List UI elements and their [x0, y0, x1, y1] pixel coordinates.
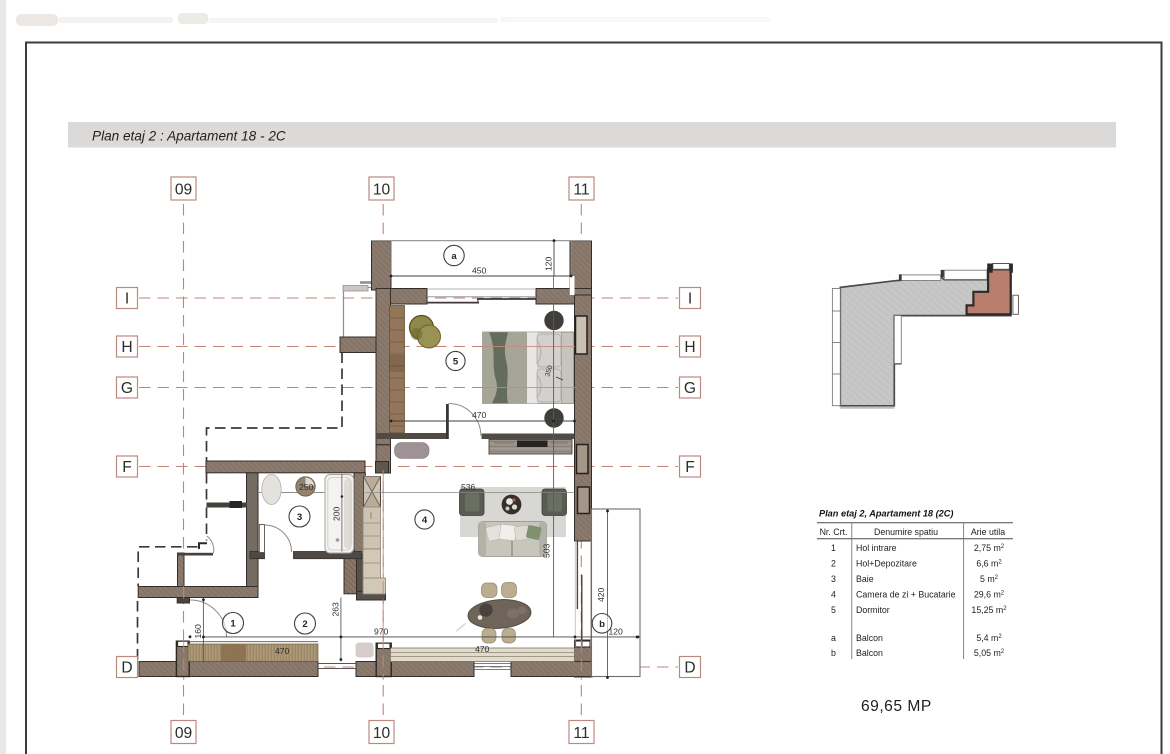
svg-text:H: H: [121, 339, 132, 356]
svg-text:536: 536: [461, 482, 476, 492]
svg-text:Nr. Crt.: Nr. Crt.: [820, 527, 848, 537]
svg-text:3: 3: [297, 512, 302, 523]
svg-text:Hol+Depozitare: Hol+Depozitare: [856, 559, 917, 569]
svg-text:1: 1: [831, 543, 836, 553]
svg-text:970: 970: [374, 627, 389, 637]
svg-text:4: 4: [831, 590, 836, 600]
svg-text:G: G: [121, 380, 133, 397]
svg-text:1: 1: [230, 619, 236, 630]
svg-text:D: D: [121, 660, 132, 677]
svg-text:a: a: [451, 251, 457, 262]
svg-text:I: I: [688, 291, 692, 308]
svg-text:D: D: [684, 660, 695, 677]
svg-text:F: F: [685, 459, 695, 476]
svg-text:160: 160: [193, 624, 203, 639]
svg-text:09: 09: [175, 725, 192, 742]
svg-text:10: 10: [373, 182, 391, 199]
svg-text:Dormitor: Dormitor: [856, 605, 890, 615]
svg-text:a: a: [831, 633, 836, 643]
svg-text:250: 250: [299, 482, 314, 492]
svg-text:Balcon: Balcon: [856, 633, 883, 643]
svg-text:2: 2: [302, 619, 307, 630]
svg-text:b: b: [599, 619, 605, 630]
svg-text:200: 200: [332, 506, 342, 521]
svg-text:503: 503: [542, 543, 552, 558]
svg-text:Denumire spatiu: Denumire spatiu: [874, 527, 938, 537]
svg-text:69,65 MP: 69,65 MP: [861, 698, 932, 715]
svg-text:5: 5: [831, 605, 836, 615]
svg-text:4: 4: [422, 515, 428, 526]
svg-text:2,75 m2: 2,75 m2: [974, 543, 1005, 553]
svg-text:Hol intrare: Hol intrare: [856, 543, 897, 553]
svg-text:5: 5: [453, 357, 459, 368]
svg-text:11: 11: [573, 725, 589, 742]
svg-text:263: 263: [331, 602, 341, 617]
svg-text:29,6 m2: 29,6 m2: [974, 590, 1005, 600]
svg-text:G: G: [684, 380, 696, 397]
svg-text:11: 11: [573, 182, 589, 199]
svg-text:09: 09: [175, 182, 192, 199]
svg-text:Baie: Baie: [856, 574, 874, 584]
svg-text:Plan etaj 2 : Apartament 18 -: Plan etaj 2 : Apartament 18 - 2C: [92, 129, 286, 144]
svg-text:b: b: [831, 648, 836, 658]
svg-text:I: I: [125, 291, 129, 308]
svg-text:Plan etaj 2, Apartament 18 (2C: Plan etaj 2, Apartament 18 (2C): [819, 509, 953, 519]
svg-text:F: F: [122, 459, 132, 476]
svg-text:5,05 m2: 5,05 m2: [974, 648, 1005, 658]
svg-text:Camera de zi + Bucatarie: Camera de zi + Bucatarie: [856, 590, 956, 600]
svg-text:Balcon: Balcon: [856, 648, 883, 658]
svg-text:Arie utila: Arie utila: [971, 527, 1005, 537]
svg-text:450: 450: [472, 266, 487, 276]
svg-text:3: 3: [831, 574, 836, 584]
svg-text:470: 470: [475, 644, 490, 654]
svg-text:H: H: [684, 339, 695, 356]
svg-text:120: 120: [544, 256, 554, 271]
svg-text:2: 2: [831, 559, 836, 569]
svg-text:470: 470: [472, 410, 487, 420]
svg-text:470: 470: [275, 646, 290, 656]
svg-text:420: 420: [596, 587, 606, 602]
svg-text:10: 10: [373, 725, 391, 742]
svg-text:15,25 m2: 15,25 m2: [971, 605, 1007, 615]
